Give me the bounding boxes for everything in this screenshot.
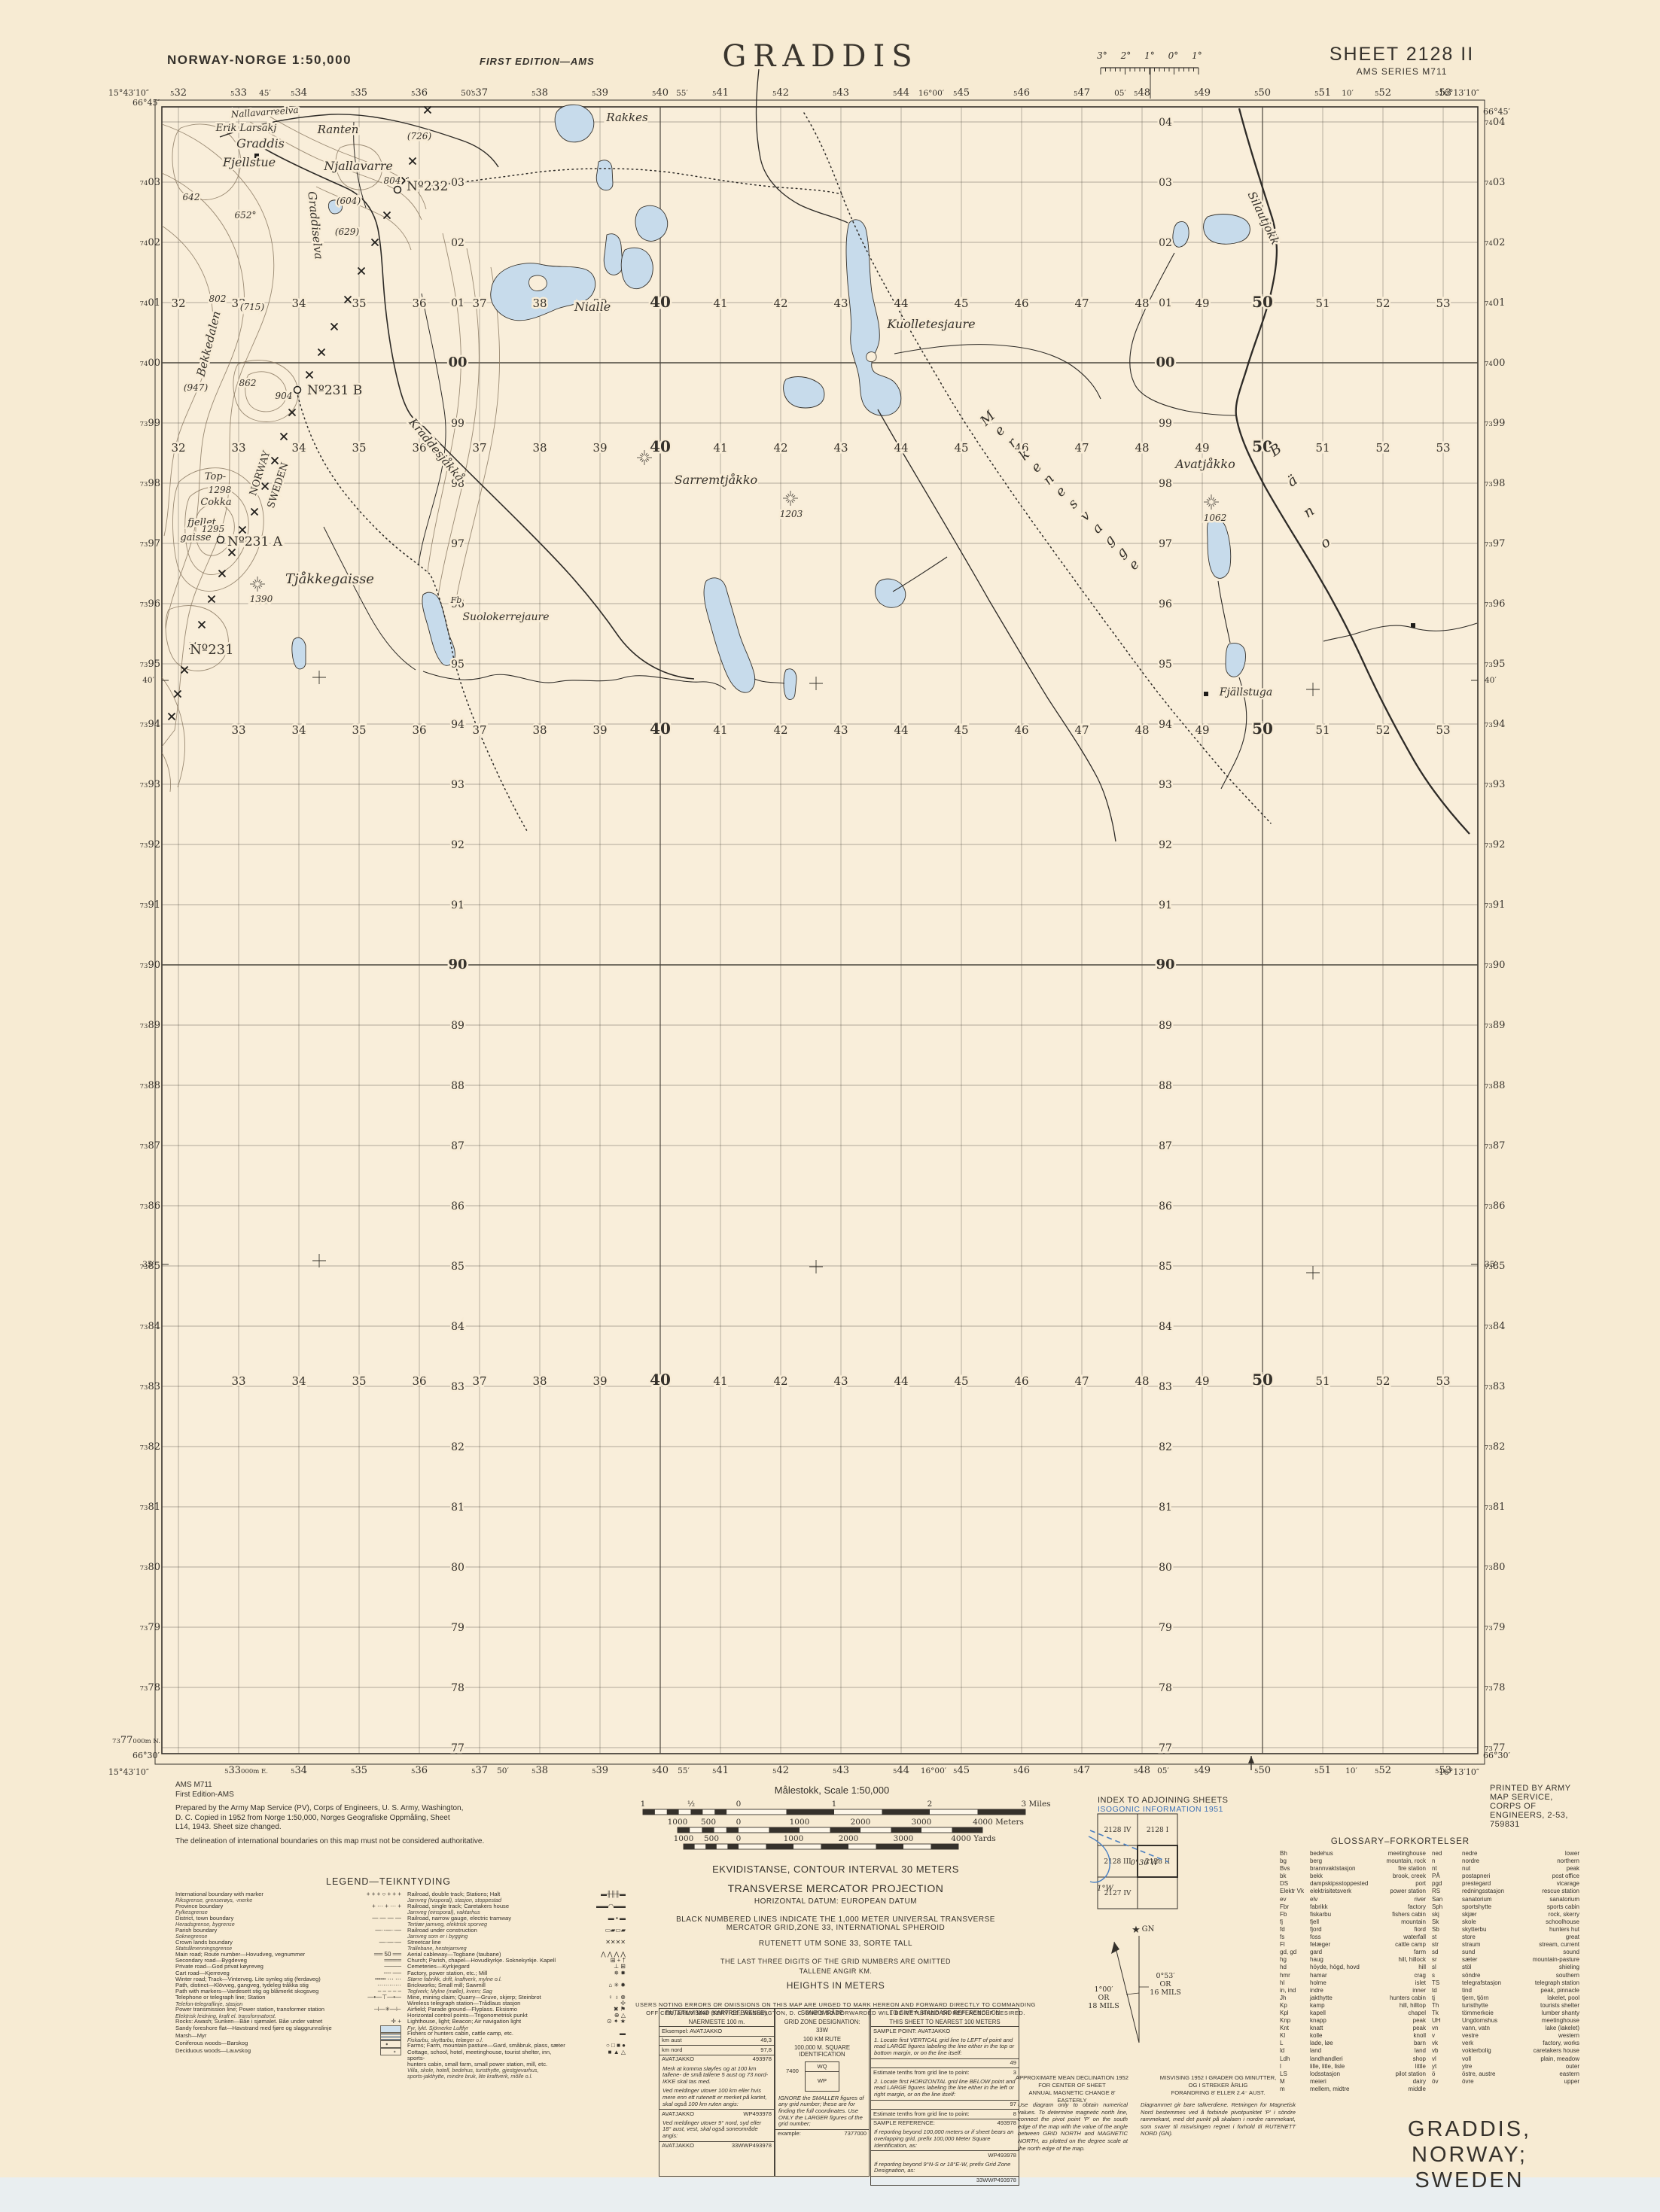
scale-bar-label: 0 bbox=[736, 1834, 742, 1843]
inmap-easting-label: 33 bbox=[231, 1374, 245, 1388]
inmap-northing-label: 88 bbox=[1159, 1080, 1172, 1092]
glossary-abbr: LS bbox=[1280, 2071, 1310, 2078]
refbox-row: Estimate tenths from grid line to point:… bbox=[871, 2067, 1019, 2077]
glossary-entry: ööstre, austreeastern bbox=[1432, 2071, 1579, 2078]
scale-bar-label: 2000 bbox=[839, 1834, 859, 1843]
legend-entry: Cottage, school, hotel, meetinghouse, to… bbox=[407, 2049, 626, 2080]
margin-grid-label: 7387 bbox=[1485, 1140, 1505, 1152]
legend-symbol: ♀ ♁ ⊗ bbox=[567, 1994, 626, 2001]
glossary-term: Ungdomshus bbox=[1462, 2017, 1542, 2025]
glossary-abbr: L bbox=[1280, 2040, 1310, 2047]
refbox-row-value: 49,3 bbox=[760, 2037, 772, 2044]
glossary-term: knapp bbox=[1310, 2017, 1413, 2025]
glossary-abbr: skj bbox=[1432, 1911, 1462, 1918]
scale-bar-label: 3000 bbox=[912, 1818, 932, 1827]
refbox-row-value: 493978 bbox=[998, 2120, 1016, 2127]
glossary-abbr: RS bbox=[1432, 1888, 1462, 1895]
minute-label: 10′ bbox=[1345, 1766, 1357, 1775]
magnetic-north-line bbox=[1114, 1942, 1139, 2043]
glossary-abbr: gd, gd bbox=[1280, 1949, 1310, 1956]
grid-square-side-label: 7400 bbox=[786, 2068, 799, 2075]
declination-head-line: FOR CENTER OF SHEET bbox=[1016, 2082, 1128, 2089]
glossary-term: nedre bbox=[1462, 1850, 1565, 1858]
margin-grid-label: 7400 bbox=[140, 358, 160, 369]
declination-tick bbox=[1126, 1993, 1139, 1994]
glossary-abbr: pgd bbox=[1432, 1880, 1462, 1888]
glossary-definition: inner bbox=[1412, 1987, 1426, 1994]
glossary-term: fjell bbox=[1310, 1918, 1401, 1926]
glossary-entry: Jhjakthyttehunters cabin bbox=[1280, 1994, 1426, 2002]
projection-note-line: EKVIDISTANSE, CONTOUR INTERVAL 30 METERS bbox=[712, 1864, 959, 1875]
glossary-abbr: Sph bbox=[1432, 1903, 1462, 1911]
projection-note-line: RUTENETT UTM SONE 33, SORTE TALL bbox=[759, 1940, 912, 1948]
refbox-paragraph: 1. Locate first VERTICAL grid line to LE… bbox=[871, 2036, 1019, 2058]
refbox-row-label: example: bbox=[778, 2131, 801, 2137]
glossary-entry: Skskoleschoolhouse bbox=[1432, 1918, 1579, 1926]
margin-grid-label: 7389 bbox=[140, 1020, 160, 1031]
inmap-easting-label: 50 bbox=[1252, 293, 1273, 311]
glossary-term: skole bbox=[1462, 1918, 1546, 1926]
glossary-term: bekk bbox=[1310, 1873, 1393, 1880]
glossary-abbr: s bbox=[1432, 1972, 1462, 1979]
inmap-easting-label: 41 bbox=[713, 297, 727, 310]
glossary-definition: lumber shanty bbox=[1542, 2010, 1579, 2017]
scale-bar-segment bbox=[726, 1827, 739, 1833]
inmap-easting-label: 46 bbox=[1014, 723, 1028, 737]
margin-grid-label: 537 bbox=[471, 87, 488, 99]
glossary-term: meieri bbox=[1310, 2078, 1413, 2086]
inmap-easting-label: 44 bbox=[894, 441, 908, 455]
glossary-term: dampskipsstoppested bbox=[1310, 1880, 1415, 1888]
glossary-term: store bbox=[1462, 1934, 1566, 1941]
legend-entry: Deciduous woods—Lauvskog bbox=[175, 2048, 401, 2055]
margin-grid-label: 550 bbox=[1254, 1765, 1271, 1776]
margin-grid-label: 7401 bbox=[1485, 297, 1505, 309]
glossary-entry: Bhbedehusmeetinghouse bbox=[1280, 1850, 1426, 1858]
glossary-entry: Kntknattpeak bbox=[1280, 2025, 1426, 2032]
scale-bar-segment bbox=[702, 1827, 714, 1833]
inmap-northing-label: 84 bbox=[451, 1321, 464, 1333]
margin-grid-label: 7390 bbox=[140, 960, 160, 971]
margin-grid-label: 7395 bbox=[140, 659, 160, 670]
margin-grid-label: 539 bbox=[592, 1765, 608, 1776]
margin-grid-label: 7402 bbox=[140, 237, 160, 248]
sheet-footer-title: GRADDIS,NORWAY; SWEDEN bbox=[1375, 2116, 1565, 2193]
glossary-abbr: vb bbox=[1432, 2047, 1462, 2055]
glossary-term: landhandleri bbox=[1310, 2055, 1413, 2063]
scale-bar-segment bbox=[876, 1844, 904, 1849]
glossary-term: stöl bbox=[1462, 1964, 1559, 1971]
glossary-definition: sports cabin bbox=[1547, 1903, 1579, 1911]
glossary-term: tjern, tjörn bbox=[1462, 1994, 1547, 2002]
degree-ruler-label: 1° bbox=[1192, 50, 1202, 61]
latitude-tick-label: 40′ bbox=[1485, 676, 1497, 685]
refbox-title-line: TO GIVE A STANDARD REFERENCE ON bbox=[871, 2009, 1019, 2018]
declination-body-en: Use diagram only to obtain numerical val… bbox=[1018, 2101, 1128, 2152]
inmap-easting-label: 33 bbox=[231, 441, 245, 455]
scale-bar-label: 0 bbox=[736, 1818, 742, 1827]
legend-symbol: ▬▬◠▬▬ bbox=[567, 1903, 626, 1909]
legend-entry: Brickworks; Small mill; SawmillTeglverk;… bbox=[407, 1982, 626, 1994]
inmap-northing-label: 85 bbox=[451, 1261, 464, 1273]
glossary-definition: power station bbox=[1390, 1888, 1426, 1895]
glossary-entry: slstölshieling bbox=[1432, 1964, 1579, 1971]
inmap-easting-label: 53 bbox=[1436, 1374, 1450, 1388]
glossary-definition: rock, skerry bbox=[1549, 1911, 1579, 1918]
margin-grid-label: 534 bbox=[291, 87, 307, 99]
glossary-definition: cattle camp bbox=[1395, 1941, 1426, 1949]
glossary-definition: shieling bbox=[1559, 1964, 1579, 1971]
boundary-cairn bbox=[218, 537, 224, 543]
place-name-label: Sarremtjåkko bbox=[675, 473, 757, 487]
place-name-label: gaisse bbox=[180, 532, 212, 543]
glossary-definition: river bbox=[1414, 1896, 1426, 1903]
glossary-definition: lakelet, pool bbox=[1547, 1994, 1579, 2002]
refbox-row-value: 33WWP493978 bbox=[976, 2177, 1016, 2184]
glossary-entry: DSdampskipsstoppestedport bbox=[1280, 1880, 1426, 1888]
glossary-definition: land bbox=[1415, 2047, 1426, 2055]
refbox-row-value: 49 bbox=[1010, 2060, 1016, 2067]
margin-grid-label: 550 bbox=[1254, 87, 1271, 99]
margin-grid-label: 7377000m N. bbox=[112, 1735, 160, 1746]
sheet-footer-line: GRADDIS, bbox=[1375, 2116, 1565, 2142]
glossary-abbr: Sk bbox=[1432, 1918, 1462, 1926]
scale-bar-label: 1000 bbox=[790, 1818, 810, 1827]
refbox-row: km nord97,8 bbox=[659, 2045, 774, 2055]
legend-entry-en: Cottage, school, hotel, meetinghouse, to… bbox=[407, 2049, 567, 2061]
glossary-abbr: PÅ bbox=[1432, 1873, 1462, 1880]
margin-grid-label: 536 bbox=[411, 1765, 428, 1776]
margin-grid-label: 7390 bbox=[1485, 960, 1505, 971]
glossary-definition: southern bbox=[1556, 1972, 1579, 1979]
scale-bar-label: 1000 bbox=[784, 1834, 804, 1843]
glossary-term: sund bbox=[1462, 1949, 1563, 1956]
glossary-definition: stream, current bbox=[1539, 1941, 1579, 1949]
glossary-abbr: Tk bbox=[1432, 2010, 1462, 2017]
glossary-entry: nednedrelower bbox=[1432, 1850, 1579, 1858]
glossary-abbr: in, ind bbox=[1280, 1987, 1310, 1994]
glossary-term: kolle bbox=[1310, 2032, 1414, 2040]
margin-grid-label: 539 bbox=[592, 87, 608, 99]
inmap-easting-label: 44 bbox=[894, 1374, 908, 1388]
lake bbox=[604, 234, 623, 275]
inmap-easting-label: 35 bbox=[352, 1374, 366, 1388]
refbox-row: 49 bbox=[871, 2058, 1019, 2068]
glossary-abbr: Bh bbox=[1280, 1850, 1310, 1858]
glossary-entry: pgdprestegardvicarage bbox=[1432, 1880, 1579, 1888]
glossary-entry: Ldhlandhandlerishop bbox=[1280, 2055, 1426, 2063]
glossary-entry: bkbekkbrook, creek bbox=[1280, 1873, 1426, 1880]
glossary-abbr: tj bbox=[1432, 1994, 1462, 2002]
declination-head-line: OG I STREKER ÅRLIG bbox=[1135, 2082, 1301, 2089]
inmap-northing-label: 81 bbox=[451, 1502, 464, 1514]
glossary-definition: middle bbox=[1408, 2086, 1426, 2093]
margin-grid-label: 7402 bbox=[1485, 237, 1505, 248]
grid-north-star: ★ bbox=[1132, 1924, 1141, 1936]
scale-bar-segment bbox=[766, 1844, 794, 1849]
refbox-title-line: 100,000 M. SQUARE IDENTIFICATION bbox=[775, 2043, 869, 2058]
glossary-term: postapneri bbox=[1462, 1873, 1552, 1880]
glossary-definition: sanatorium bbox=[1549, 1896, 1579, 1903]
grid-square-bottom: WP bbox=[806, 2072, 839, 2091]
legend-symbol: —•—⊤—•— bbox=[343, 1994, 401, 2001]
credit-line: First Edition-AMS bbox=[175, 1791, 492, 1800]
refbox-row: WP493978 bbox=[871, 2150, 1019, 2160]
glossary-term: lodsstasjon bbox=[1310, 2071, 1396, 2078]
inmap-northing-label: 90 bbox=[448, 957, 467, 972]
margin-grid-label: 540 bbox=[652, 1765, 669, 1776]
inmap-northing-label: 00 bbox=[448, 354, 467, 370]
inmap-northing-label: 81 bbox=[1159, 1502, 1172, 1514]
inmap-northing-label: 93 bbox=[451, 779, 464, 791]
refbox-row: SAMPLE REFERENCE:493978 bbox=[871, 2119, 1019, 2128]
lake-island bbox=[867, 352, 876, 362]
glossary-abbr: bg bbox=[1280, 1858, 1310, 1865]
inmap-northing-label: 89 bbox=[451, 1020, 464, 1032]
glossary-entry: vvestrewestern bbox=[1432, 2032, 1579, 2040]
minute-label: 55′ bbox=[676, 89, 688, 98]
legend-symbol: ▬╫╫╫▬ bbox=[567, 1891, 626, 1897]
inmap-easting-label: 39 bbox=[592, 1374, 607, 1388]
inmap-easting-label: 40 bbox=[650, 1371, 671, 1389]
inmap-easting-label: 42 bbox=[773, 297, 787, 310]
refbox-row-label: km aust bbox=[662, 2037, 682, 2044]
declination-head-line: MISVISING 1952 I GRADER OG MINUTTER, bbox=[1135, 2074, 1301, 2082]
inmap-northing-label: 02 bbox=[451, 237, 464, 249]
elevation-label: 1390 bbox=[250, 594, 273, 604]
inmap-easting-label: 44 bbox=[894, 723, 908, 737]
lake bbox=[596, 160, 613, 190]
lake bbox=[555, 105, 594, 142]
glossary-term: bedehus bbox=[1310, 1850, 1388, 1858]
credit-block: AMS M711First Edition-AMS Prepared by th… bbox=[175, 1781, 492, 1846]
scale-bar-segment bbox=[787, 1809, 835, 1815]
margin-grid-label: 7394 bbox=[1485, 719, 1505, 730]
inmap-northing-label: 89 bbox=[1159, 1020, 1172, 1032]
glossary-definition: northern bbox=[1557, 1858, 1579, 1865]
margin-grid-label: 543 bbox=[833, 87, 849, 99]
inmap-easting-label: 51 bbox=[1315, 441, 1330, 455]
refbox-row-label: AVATJAKKO bbox=[662, 2143, 694, 2150]
projection-note-line: HEIGHTS IN METERS bbox=[787, 1980, 885, 1991]
inmap-northing-label: 78 bbox=[1159, 1682, 1172, 1694]
margin-grid-label: 552 bbox=[1375, 1765, 1391, 1776]
scale-bar-label: ½ bbox=[687, 1800, 695, 1809]
margin-grid-label: 7392 bbox=[1485, 839, 1505, 850]
glossary-definition: factory bbox=[1408, 1903, 1426, 1911]
declination-note-en: APPROXIMATE MEAN DECLINATION 1952FOR CEN… bbox=[1016, 2074, 1128, 2104]
declination-head-line: APPROXIMATE MEAN DECLINATION 1952 bbox=[1016, 2074, 1128, 2082]
glossary-abbr: st bbox=[1432, 1934, 1462, 1941]
building bbox=[1411, 623, 1415, 628]
credit-line: AMS M711 bbox=[175, 1781, 492, 1791]
inmap-northing-label: 80 bbox=[451, 1562, 464, 1574]
glossary-term: berg bbox=[1310, 1858, 1387, 1865]
refbox-row-value: 33WWP493978 bbox=[732, 2143, 772, 2150]
glossary-definition: post office bbox=[1552, 1873, 1579, 1880]
glossary-term: söndre bbox=[1462, 1972, 1556, 1979]
margin-grid-label: 541 bbox=[712, 1765, 729, 1776]
glossary-entry: Kplkapellchapel bbox=[1280, 2010, 1426, 2017]
index-title: INDEX TO ADJOINING SHEETS bbox=[1098, 1796, 1228, 1805]
legend-symbol bbox=[343, 2048, 401, 2055]
glossary-definition: schoolhouse bbox=[1546, 1918, 1579, 1926]
inmap-easting-label: 48 bbox=[1135, 1374, 1149, 1388]
inmap-northing-label: 90 bbox=[1156, 957, 1174, 972]
refbox-row: SAMPLE POINT: AVATJAKKO bbox=[871, 2026, 1019, 2036]
margin-grid-label: 7398 bbox=[140, 478, 160, 489]
place-name-label: Nialle bbox=[574, 300, 611, 314]
scale-bar-label: 1000 bbox=[674, 1834, 694, 1843]
projection-note-line: TALLENE ANGIR KM. bbox=[800, 1967, 873, 1975]
inmap-easting-label: 35 bbox=[352, 297, 366, 310]
glossary-term: turisthytte bbox=[1462, 2002, 1540, 2010]
inmap-easting-label: 32 bbox=[171, 297, 185, 310]
margin-grid-label: 7388 bbox=[1485, 1080, 1505, 1091]
declination-value: 16 MILS bbox=[1150, 1988, 1180, 1997]
glossary-entry: Klkolleknoll bbox=[1280, 2032, 1426, 2040]
inmap-northing-label: 04 bbox=[1159, 117, 1172, 129]
legend-entry: Streetcar lineTrallebane, hestejarnveg✕✕… bbox=[407, 1940, 626, 1952]
elevation-label: (947) bbox=[184, 382, 209, 393]
glossary-definition: brook, creek bbox=[1393, 1873, 1426, 1880]
inmap-northing-label: 94 bbox=[451, 719, 464, 731]
refbox-title-line: THIS SHEET TO NEAREST 100 METERS bbox=[871, 2018, 1019, 2027]
legend-entry: Telephone or telegraph line; StationTele… bbox=[175, 1994, 401, 2007]
inmap-northing-label: 85 bbox=[1159, 1261, 1172, 1273]
inmap-northing-label: 77 bbox=[1159, 1742, 1172, 1754]
legend-entry: Factory, power station, etc.; MillStørre… bbox=[407, 1970, 626, 1982]
credit-line: L14, 1943. Sheet size changed. bbox=[175, 1823, 492, 1833]
glossary-abbr: fd bbox=[1280, 1926, 1310, 1934]
magnetic-north-arrowhead bbox=[1111, 1942, 1119, 1954]
glossary-abbr: ev bbox=[1280, 1896, 1310, 1903]
place-name-label: Fjellstue bbox=[222, 155, 276, 169]
margin-grid-label: 7399 bbox=[140, 418, 160, 429]
glossary-entry: Flfelægercattle camp bbox=[1280, 1941, 1426, 1949]
glossary-term: vann, vatn bbox=[1462, 2025, 1546, 2032]
margin-grid-label: 7391 bbox=[140, 899, 160, 911]
glossary-entry: vnvann, vatnlake (lakelet) bbox=[1432, 2025, 1579, 2032]
glossary-definition: barn bbox=[1414, 2040, 1426, 2047]
glossary-entry: vlvollplain, meadow bbox=[1432, 2055, 1579, 2063]
refbox-row-label: SAMPLE REFERENCE: bbox=[873, 2120, 935, 2127]
glossary-entry: RSredningsstasjonrescue station bbox=[1432, 1888, 1579, 1895]
inmap-easting-label: 41 bbox=[713, 441, 727, 455]
glossary-term: felæger bbox=[1310, 1941, 1395, 1949]
refbox-row: 33WWP493978 bbox=[871, 2176, 1019, 2186]
place-name-label: Ranten bbox=[317, 123, 359, 136]
credit-line: The delineation of international boundar… bbox=[175, 1837, 492, 1847]
legend-entry: Railroad, double track; Stations; HaltJa… bbox=[407, 1891, 626, 1903]
glossary-abbr: Elektr Vk bbox=[1280, 1888, 1310, 1895]
glossary-term: fiskarbu bbox=[1310, 1911, 1392, 1918]
map-sheet: NORWAY-NORGE 1:50,000 FIRST EDITION—AMS … bbox=[0, 0, 1660, 2212]
glossary-entry: ssöndresouthern bbox=[1432, 1972, 1579, 1979]
refbox-row-value: 8 bbox=[1013, 2111, 1016, 2118]
inmap-easting-label: 47 bbox=[1074, 723, 1089, 737]
refbox-paragraph: If reporting beyond 9°N-S or 18°E-W, pre… bbox=[871, 2160, 1019, 2176]
glossary-definition: peak bbox=[1413, 2025, 1426, 2032]
glossary-definition: meetinghouse bbox=[1388, 1850, 1426, 1858]
refbox-row-label: Eksempel: AVATJAKKO bbox=[662, 2028, 722, 2035]
place-name-label: Tjåkkegaisse bbox=[285, 570, 374, 587]
glossary-entry: fsfosswaterfall bbox=[1280, 1934, 1426, 1941]
refbox-row: Eksempel: AVATJAKKO bbox=[659, 2026, 774, 2036]
glossary-entry: PÅpostapneripost office bbox=[1432, 1873, 1579, 1880]
inmap-easting-label: 53 bbox=[1436, 297, 1450, 310]
glossary-definition: peak, pinnacle bbox=[1540, 1987, 1579, 1994]
refbox-title-line: 33W bbox=[775, 2026, 869, 2035]
projection-note-line: USERS NOTING ERRORS OR OMISSIONS ON THIS… bbox=[635, 2001, 1036, 2008]
margin-grid-label: 549 bbox=[1194, 87, 1211, 99]
margin-grid-label: 546 bbox=[1013, 1765, 1030, 1776]
refbox-paragraph: IGNORE the SMALLER figures of any grid n… bbox=[775, 2094, 869, 2129]
latitude-tick-label: 40′ bbox=[142, 676, 154, 685]
legend-entry: Parish boundarySoknegrense—··—··— bbox=[175, 1928, 401, 1940]
inmap-easting-label: 49 bbox=[1195, 441, 1209, 455]
place-name-label: Fb bbox=[450, 595, 462, 605]
margin-grid-label: 532 bbox=[170, 87, 187, 99]
margin-grid-label: 7404 bbox=[1485, 117, 1505, 128]
inmap-northing-label: 83 bbox=[1159, 1381, 1172, 1393]
glossary-abbr: M bbox=[1280, 2078, 1310, 2086]
refbox-row-label: Estimate tenths from grid line to point: bbox=[873, 2070, 969, 2077]
margin-grid-label: 544 bbox=[893, 87, 909, 99]
glossary-definition: plain, meadow bbox=[1540, 2055, 1579, 2063]
margin-grid-label: 7381 bbox=[140, 1502, 160, 1513]
legend-entry-en: Coniferous woods—Barskog bbox=[175, 2040, 343, 2046]
minute-label: 50′ bbox=[497, 1766, 509, 1775]
refbox-title-line: NAERMESTE 100 m. bbox=[659, 2018, 774, 2027]
legend-symbol: ✕✕✕✕ bbox=[567, 1940, 626, 1946]
glossary-entry: Kpkamphill, hilltop bbox=[1280, 2002, 1426, 2010]
minute-label: 05′ bbox=[1114, 89, 1126, 98]
glossary-abbr: hl bbox=[1280, 1979, 1310, 1987]
glossary-definition: knoll bbox=[1414, 2032, 1426, 2040]
inmap-northing-label: 95 bbox=[451, 659, 464, 671]
inmap-easting-label: 49 bbox=[1195, 1374, 1209, 1388]
legend-entry: Railroad, narrow gauge, electric tramway… bbox=[407, 1915, 626, 1928]
margin-grid-label: 545 bbox=[953, 1765, 970, 1776]
lake-island bbox=[529, 275, 547, 291]
scale-bar-segment bbox=[643, 1809, 655, 1815]
elevation-label: 862 bbox=[239, 378, 257, 388]
refbox-row: Estimate tenths from grid line to point:… bbox=[871, 2109, 1019, 2119]
degree-ruler-label: 0° bbox=[1168, 50, 1179, 61]
inmap-northing-label: 97 bbox=[1159, 538, 1172, 550]
degree-ruler-label: 3° bbox=[1097, 50, 1107, 61]
glossary-entry: hlholmeislet bbox=[1280, 1979, 1426, 1987]
margin-grid-label: 551 bbox=[1314, 87, 1331, 99]
glossary-abbr: Fl bbox=[1280, 1941, 1310, 1949]
corner-longitude: 16°13′10″ bbox=[1439, 88, 1479, 98]
glossary-entry: tjtjern, tjörnlakelet, pool bbox=[1432, 1994, 1579, 2002]
scale-bar-label: 0 bbox=[736, 1800, 742, 1809]
elevation-label: (715) bbox=[240, 302, 265, 312]
glossary-entry: llille, litle, lislelittle bbox=[1280, 2063, 1426, 2071]
legend-entry: District, town boundaryHeradsgrense, byg… bbox=[175, 1915, 401, 1928]
corner-longitude: 16°13′10″ bbox=[1439, 1767, 1479, 1777]
glossary-title: GLOSSARY–FORKORTELSER bbox=[1331, 1837, 1470, 1846]
scale-bar-segment bbox=[882, 1809, 931, 1815]
latitude-tick-label: 35′ bbox=[1485, 1260, 1497, 1269]
minute-label: 05′ bbox=[1157, 1766, 1169, 1775]
glossary-abbr: Knp bbox=[1280, 2017, 1310, 2025]
glossary-term: jakthytte bbox=[1310, 1994, 1390, 2002]
glossary-abbr: Jh bbox=[1280, 1994, 1310, 2002]
glossary-term: verk bbox=[1462, 2040, 1543, 2047]
